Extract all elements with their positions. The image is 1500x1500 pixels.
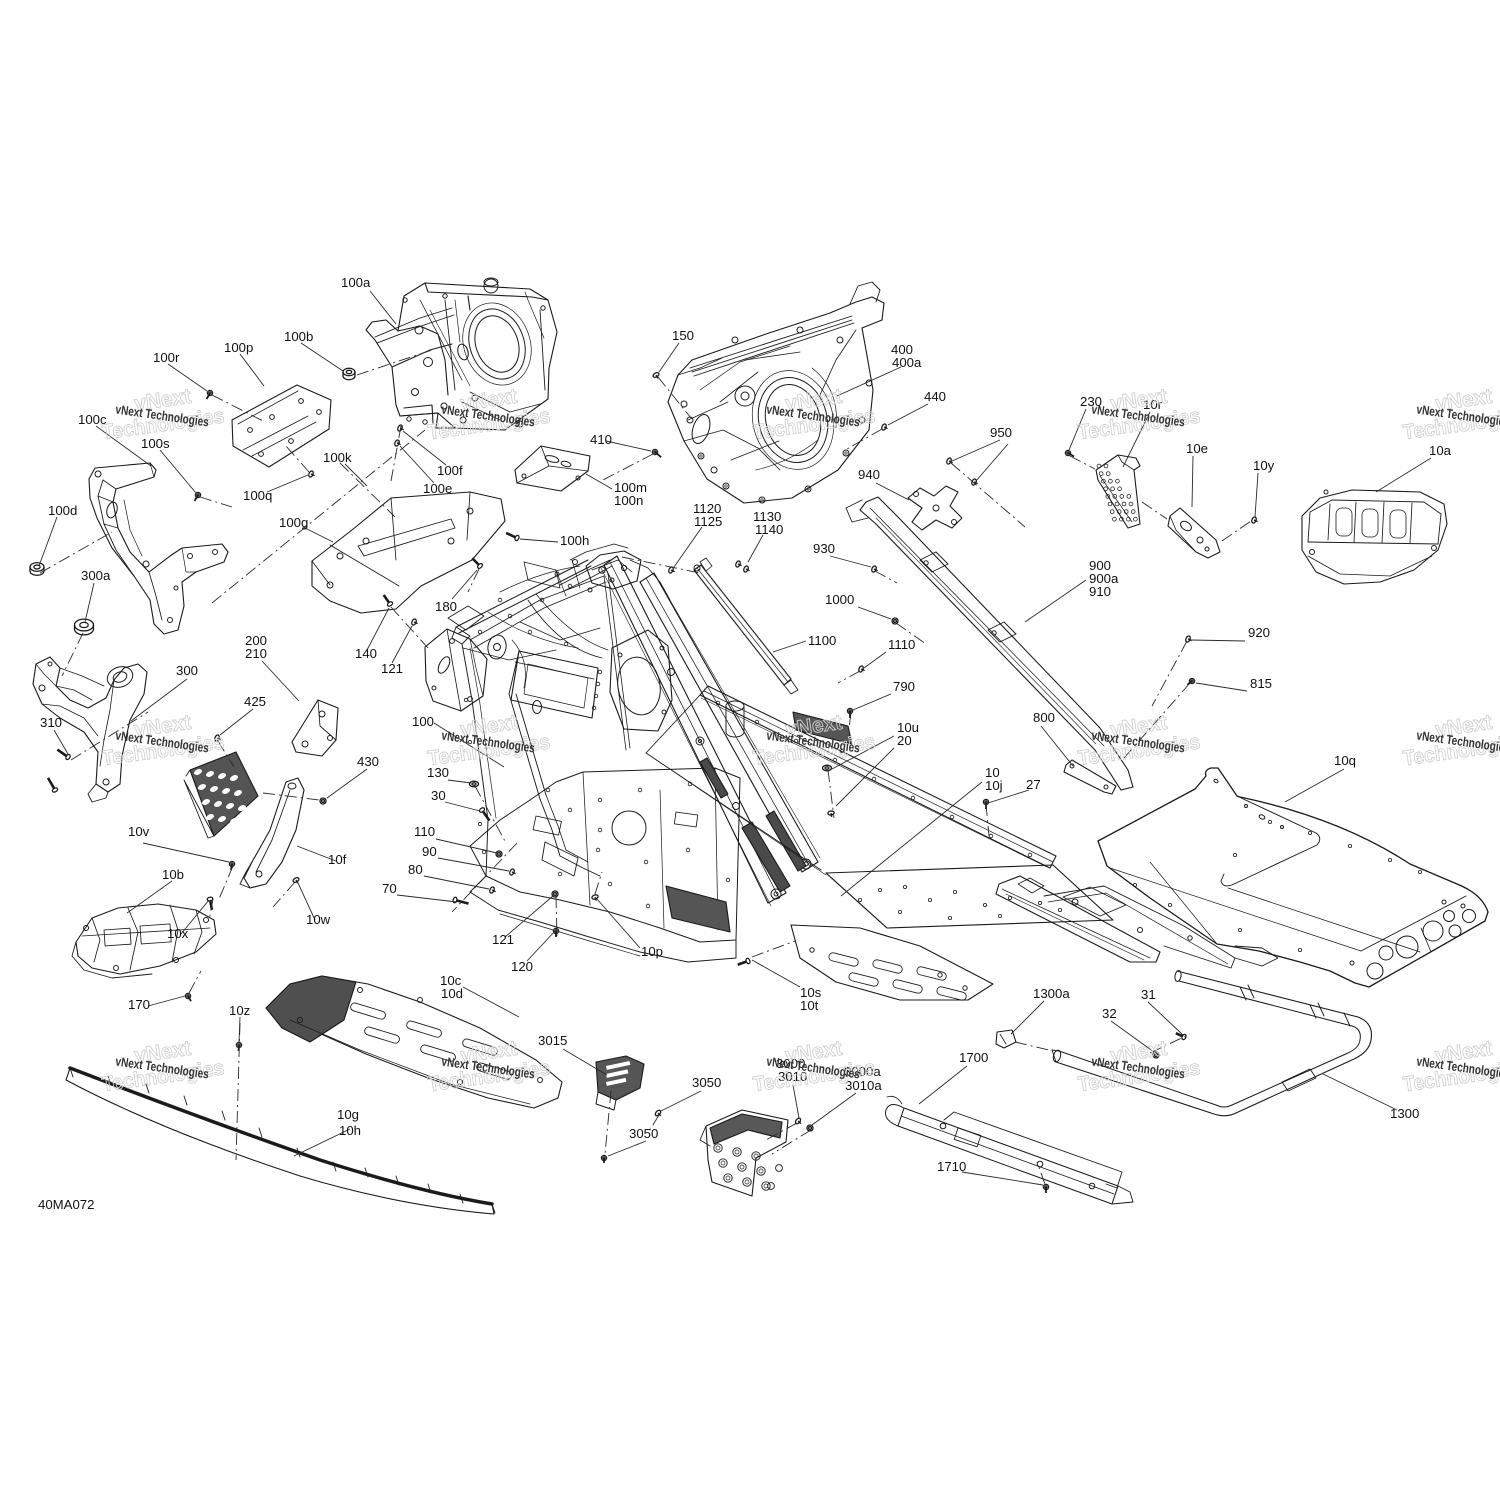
svg-text:1300a: 1300a <box>1033 986 1070 1001</box>
svg-text:10a: 10a <box>1429 443 1452 458</box>
svg-text:27: 27 <box>1026 777 1041 792</box>
svg-text:10t: 10t <box>800 998 819 1013</box>
svg-text:425: 425 <box>244 694 266 709</box>
svg-text:10q: 10q <box>1334 753 1356 768</box>
svg-text:1100: 1100 <box>808 633 836 648</box>
svg-text:920: 920 <box>1248 625 1270 640</box>
svg-text:930: 930 <box>813 541 835 556</box>
svg-text:121: 121 <box>381 661 403 676</box>
svg-text:100b: 100b <box>284 329 313 344</box>
svg-text:3050: 3050 <box>692 1075 721 1090</box>
svg-text:440: 440 <box>924 389 946 404</box>
svg-text:100n: 100n <box>614 493 643 508</box>
svg-text:110: 110 <box>414 824 435 839</box>
svg-text:10j: 10j <box>985 778 1003 793</box>
svg-text:815: 815 <box>1250 676 1272 691</box>
svg-text:10v: 10v <box>128 824 150 839</box>
svg-text:170: 170 <box>128 997 150 1012</box>
svg-text:10d: 10d <box>441 986 463 1001</box>
svg-text:410: 410 <box>590 432 612 447</box>
svg-text:1110: 1110 <box>888 637 915 652</box>
svg-text:90: 90 <box>422 844 437 859</box>
svg-text:100k: 100k <box>323 450 352 465</box>
svg-text:100a: 100a <box>341 275 371 290</box>
svg-text:10z: 10z <box>229 1003 250 1018</box>
svg-text:100f: 100f <box>437 463 463 478</box>
svg-text:1125: 1125 <box>694 514 722 529</box>
svg-text:120: 120 <box>511 959 533 974</box>
svg-text:32: 32 <box>1102 1006 1117 1021</box>
svg-text:790: 790 <box>893 679 915 694</box>
svg-text:1700: 1700 <box>959 1050 988 1065</box>
svg-text:10b: 10b <box>162 867 184 882</box>
svg-text:100r: 100r <box>153 350 180 365</box>
svg-text:3050: 3050 <box>629 1126 658 1141</box>
svg-text:940: 940 <box>858 467 880 482</box>
svg-text:100e: 100e <box>423 481 452 496</box>
svg-text:100h: 100h <box>560 533 589 548</box>
svg-text:1000: 1000 <box>825 592 854 607</box>
svg-text:30: 30 <box>431 788 446 803</box>
svg-text:180: 180 <box>435 599 457 614</box>
svg-text:150: 150 <box>672 328 694 343</box>
svg-text:10g: 10g <box>337 1107 359 1122</box>
svg-text:10y: 10y <box>1253 458 1275 473</box>
svg-text:80: 80 <box>408 862 423 877</box>
svg-text:100: 100 <box>412 714 434 729</box>
svg-text:210: 210 <box>245 646 267 661</box>
svg-text:950: 950 <box>990 425 1012 440</box>
svg-text:10w: 10w <box>306 912 331 927</box>
svg-text:70: 70 <box>382 881 397 896</box>
svg-text:10f: 10f <box>328 852 347 867</box>
svg-text:10e: 10e <box>1186 441 1208 456</box>
svg-text:1140: 1140 <box>755 522 783 537</box>
svg-text:100g: 100g <box>279 515 308 530</box>
svg-text:121: 121 <box>492 932 514 947</box>
svg-text:10x: 10x <box>167 926 189 941</box>
svg-text:10p: 10p <box>641 944 663 959</box>
svg-text:910: 910 <box>1089 584 1111 599</box>
svg-text:3015: 3015 <box>538 1033 567 1048</box>
svg-text:40MA072: 40MA072 <box>38 1197 94 1212</box>
svg-text:31: 31 <box>1141 987 1156 1002</box>
svg-text:20: 20 <box>897 733 912 748</box>
svg-text:400a: 400a <box>892 355 922 370</box>
svg-text:800: 800 <box>1033 710 1055 725</box>
svg-text:300a: 300a <box>81 568 111 583</box>
svg-text:1300: 1300 <box>1390 1106 1419 1121</box>
svg-text:430: 430 <box>357 754 379 769</box>
svg-text:100q: 100q <box>243 488 272 503</box>
svg-text:100d: 100d <box>48 503 77 518</box>
svg-text:140: 140 <box>355 646 377 661</box>
svg-text:100p: 100p <box>224 340 253 355</box>
svg-text:310: 310 <box>40 715 62 730</box>
svg-text:10h: 10h <box>339 1123 361 1138</box>
svg-text:1710: 1710 <box>937 1159 966 1174</box>
svg-text:300: 300 <box>176 663 198 678</box>
